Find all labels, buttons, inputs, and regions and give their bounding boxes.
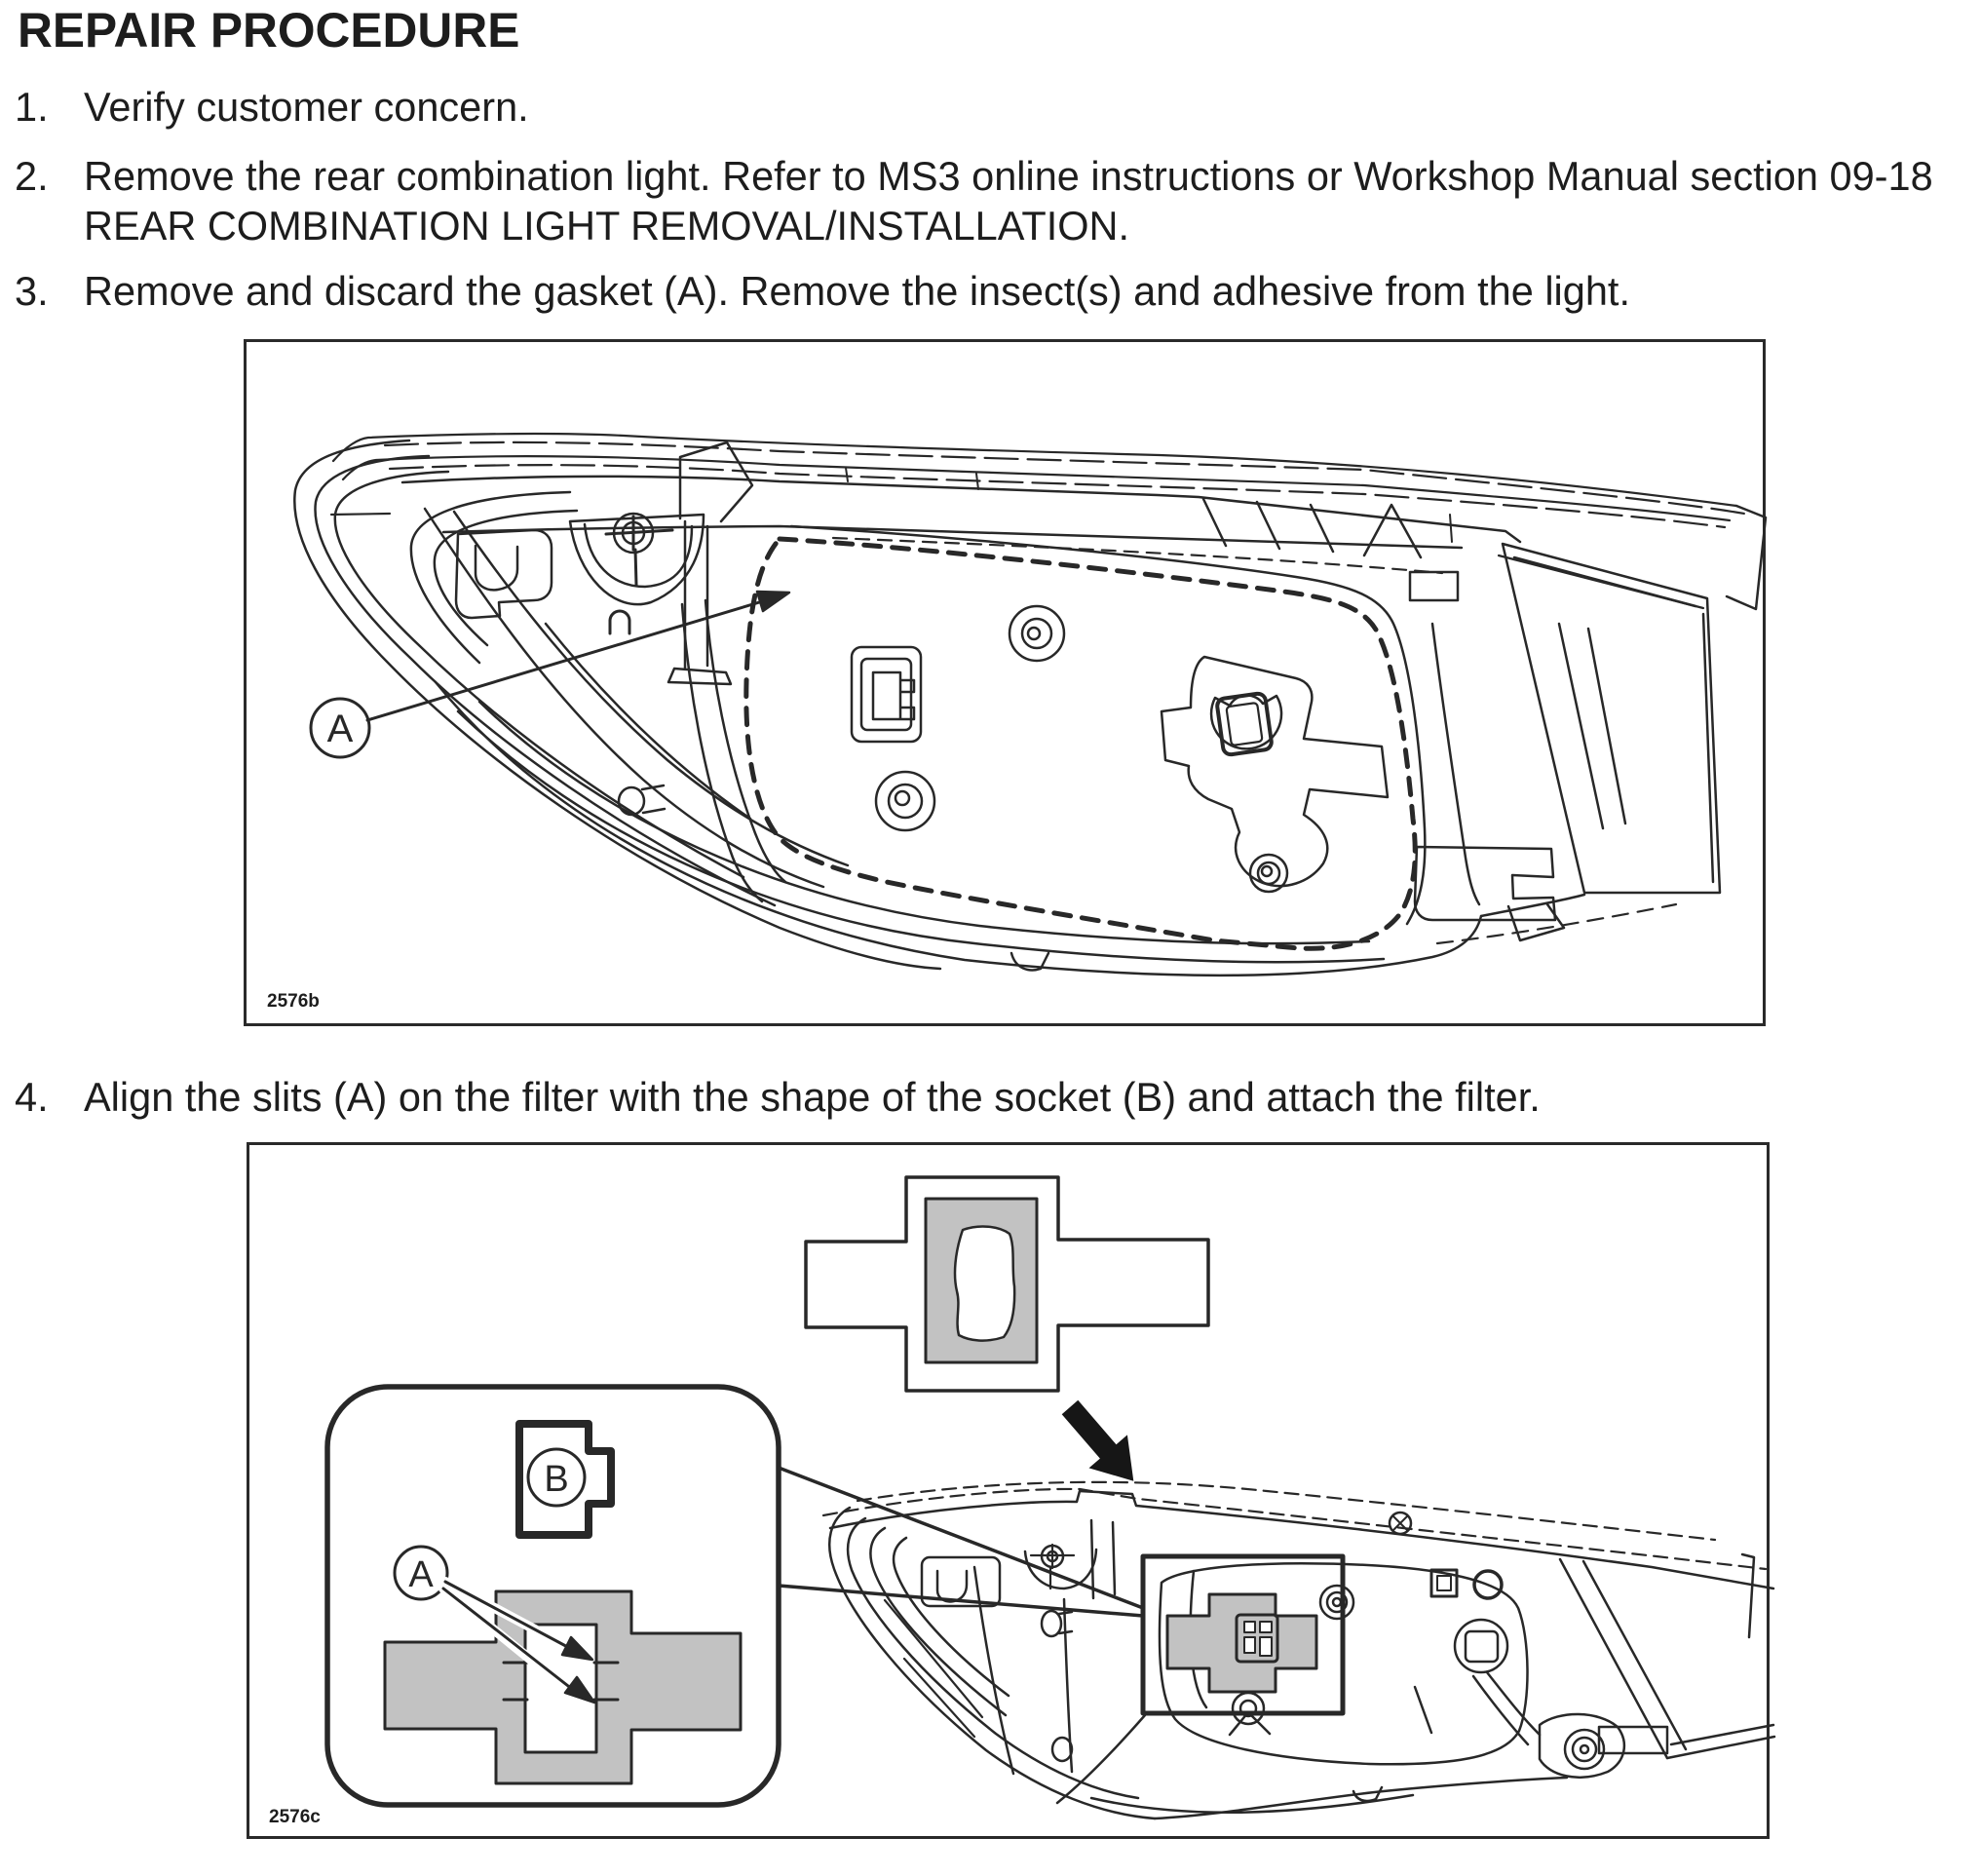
svg-text:A: A xyxy=(408,1554,434,1595)
svg-text:B: B xyxy=(544,1459,568,1500)
